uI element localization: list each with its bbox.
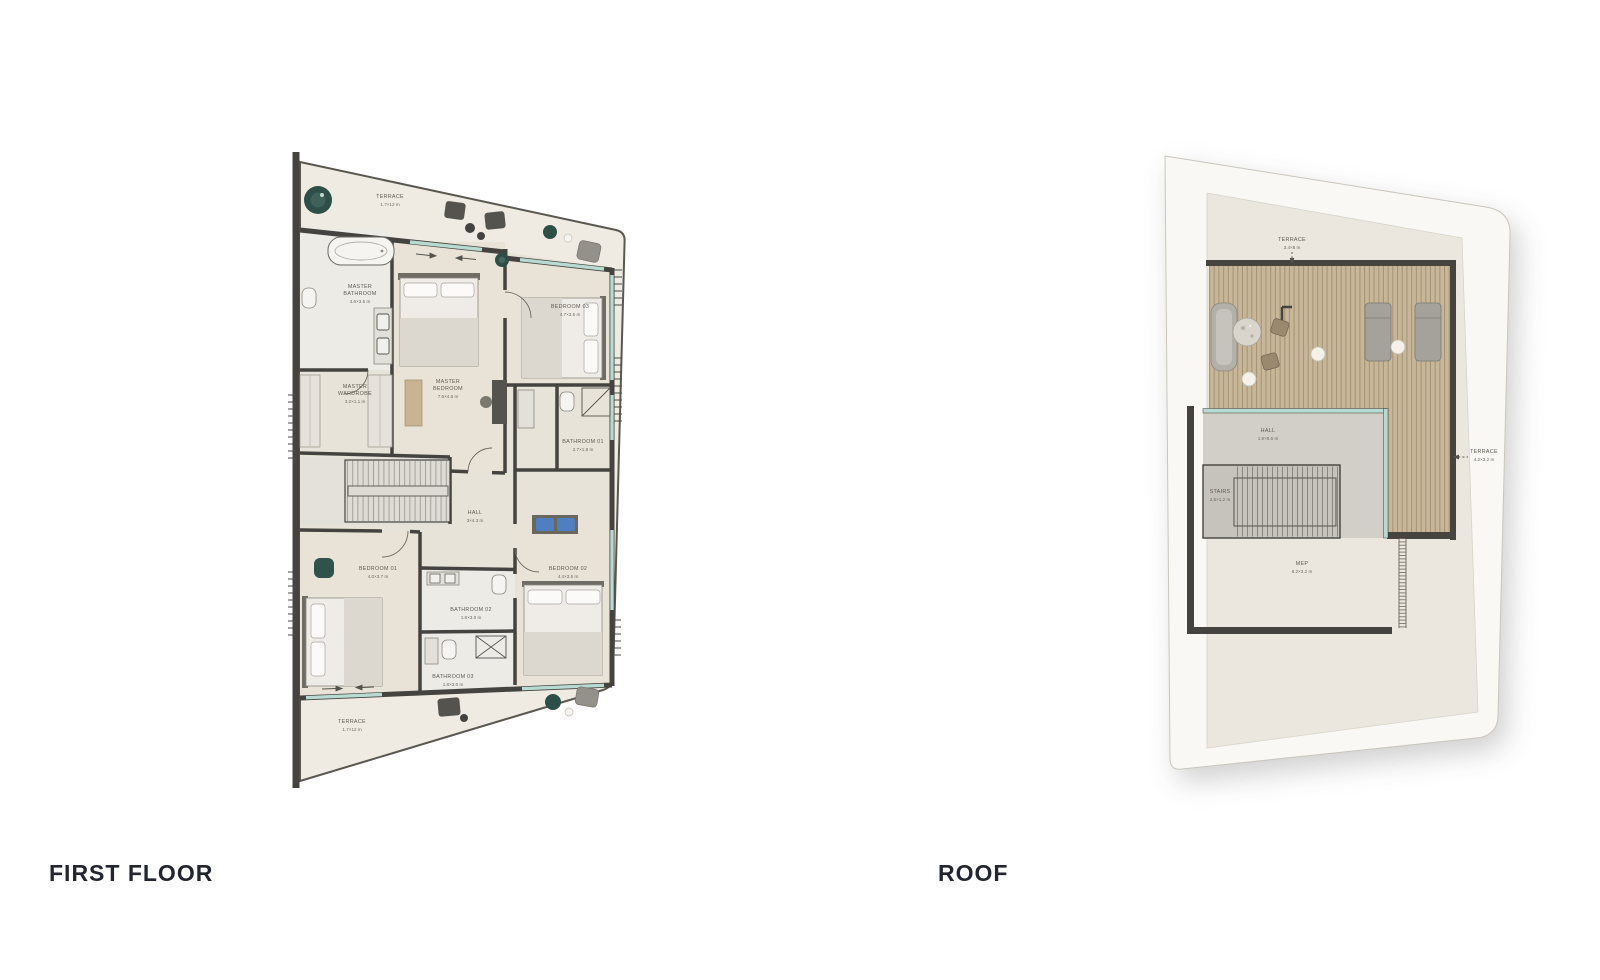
room-label: TERRACE <box>376 194 404 200</box>
lounge-chair <box>444 201 466 221</box>
round-table <box>1233 318 1261 346</box>
room-dims: 1.7×12 m <box>342 727 361 732</box>
window-strip <box>1203 409 1387 414</box>
plant <box>543 225 557 239</box>
room-label: HALL <box>468 510 483 516</box>
lounge-chair <box>484 211 506 230</box>
side-table <box>465 223 475 233</box>
room-label: BEDROOM 01 <box>359 566 397 572</box>
room-dims: 1.8×3.0 m <box>461 615 482 620</box>
sun-lounger <box>1365 303 1391 361</box>
page-background: TERRACE 1.7×12 m MASTER BATHROOM 4.6×3.5… <box>0 0 1600 980</box>
room-label: WARDROBE <box>338 391 372 397</box>
room-dims: 3×4.3 m <box>467 518 484 523</box>
room-dims: 8.2×3.2 m <box>1292 569 1313 574</box>
room-label: MASTER <box>348 284 372 290</box>
window-strip <box>1384 409 1389 539</box>
first-floor-title: FIRST FLOOR <box>49 860 213 887</box>
room-label: BEDROOM 02 <box>549 566 587 572</box>
bathtub <box>328 237 394 265</box>
bench-seat <box>532 515 578 534</box>
room-label: TERRACE <box>338 719 366 725</box>
room-dims: 4.2×3.2 m <box>1474 457 1495 462</box>
room-label: BATHROOM 01 <box>562 439 604 445</box>
room-dims: 3.2×1.1 m <box>345 399 366 404</box>
wall <box>1187 406 1194 634</box>
room-dims: 2.5×1.2 m <box>1210 497 1231 502</box>
room-dims: 4.4×3.5 m <box>558 574 579 579</box>
room-label: STAIRS <box>1210 489 1231 495</box>
chair <box>575 686 600 708</box>
room-dims: 4.6×3.5 m <box>350 299 371 304</box>
room-dims: 4.7×3.5 m <box>560 312 581 317</box>
side-table <box>460 714 468 722</box>
dresser <box>405 380 422 426</box>
toilet <box>302 288 316 308</box>
room-dims: 1.9×8.6 m <box>1258 436 1279 441</box>
room-dims: 4.0×3.7 m <box>368 574 389 579</box>
lamp <box>565 708 573 716</box>
bed <box>302 596 382 688</box>
vanity-sinks <box>374 308 392 364</box>
staircase <box>345 460 450 522</box>
room-label: TERRACE <box>1470 449 1498 455</box>
room-label: TERRACE <box>1278 237 1306 243</box>
plant <box>545 694 561 710</box>
wall <box>1187 627 1392 634</box>
room-dims: 2.7×1.8 m <box>573 447 594 452</box>
room-label: HALL <box>1261 428 1276 434</box>
armchair <box>314 558 334 578</box>
lamp <box>564 234 572 242</box>
lamp <box>1311 347 1325 361</box>
room-label: BATHROOM 03 <box>432 674 474 680</box>
room-label: BEDROOM <box>433 386 463 392</box>
roof-plan: TERRACE 3.4×8 m HALL 1.9×8.6 m STAIRS 2.… <box>1140 140 1540 800</box>
plant-inner <box>499 257 505 263</box>
lamp <box>1391 340 1405 354</box>
roof-title: ROOF <box>938 860 1008 887</box>
bed <box>522 581 604 675</box>
room-label: BEDROOM 03 <box>551 304 589 310</box>
master-bed <box>398 273 480 366</box>
sofa <box>1211 303 1237 371</box>
chair <box>437 697 460 717</box>
room-label: BATHROOM 02 <box>450 607 492 613</box>
room-dims: 7.6×4.6 m <box>438 394 459 399</box>
first-floor-plan: TERRACE 1.7×12 m MASTER BATHROOM 4.6×3.5… <box>270 140 670 800</box>
room-label: MASTER <box>436 379 460 385</box>
sun-lounger <box>1415 303 1441 361</box>
room-dims: 3.4×8 m <box>1284 245 1301 250</box>
chair <box>576 240 601 263</box>
lamp <box>1242 372 1256 386</box>
room-label: BATHROOM <box>343 291 376 297</box>
room-dims: 1.7×12 m <box>380 202 399 207</box>
room-label: MASTER <box>343 384 367 390</box>
room-label: MEP <box>1296 561 1309 567</box>
side-table <box>477 232 485 240</box>
room-dims: 1.8×3.0 m <box>443 682 464 687</box>
